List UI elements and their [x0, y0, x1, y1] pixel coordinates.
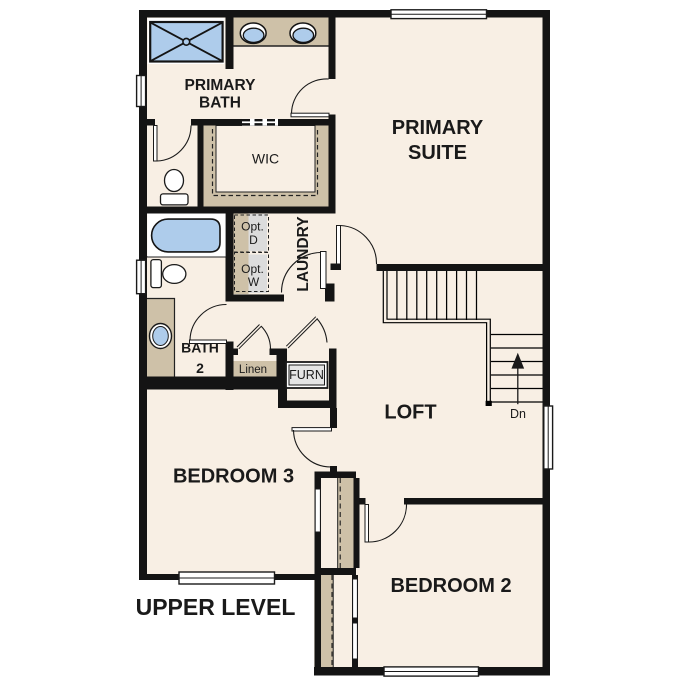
- svg-text:FURN: FURN: [289, 368, 324, 382]
- svg-text:LAUNDRY: LAUNDRY: [295, 216, 312, 292]
- svg-text:2: 2: [196, 360, 204, 376]
- svg-text:BEDROOM 2: BEDROOM 2: [390, 575, 511, 597]
- svg-text:WIC: WIC: [252, 151, 279, 167]
- svg-text:BATH: BATH: [181, 340, 219, 356]
- svg-text:BATH: BATH: [199, 95, 241, 112]
- svg-text:Opt.: Opt.: [241, 220, 264, 234]
- svg-text:PRIMARY: PRIMARY: [392, 117, 484, 139]
- svg-text:PRIMARY: PRIMARY: [185, 77, 257, 94]
- svg-text:LOFT: LOFT: [384, 402, 436, 424]
- svg-text:D: D: [249, 233, 258, 247]
- svg-text:Linen: Linen: [239, 364, 267, 376]
- svg-text:Opt.: Opt.: [241, 262, 264, 276]
- svg-text:BEDROOM 3: BEDROOM 3: [173, 466, 294, 488]
- svg-text:Dn: Dn: [510, 407, 526, 421]
- svg-text:W: W: [248, 275, 260, 289]
- svg-text:SUITE: SUITE: [408, 142, 467, 164]
- svg-text:UPPER LEVEL: UPPER LEVEL: [136, 594, 296, 620]
